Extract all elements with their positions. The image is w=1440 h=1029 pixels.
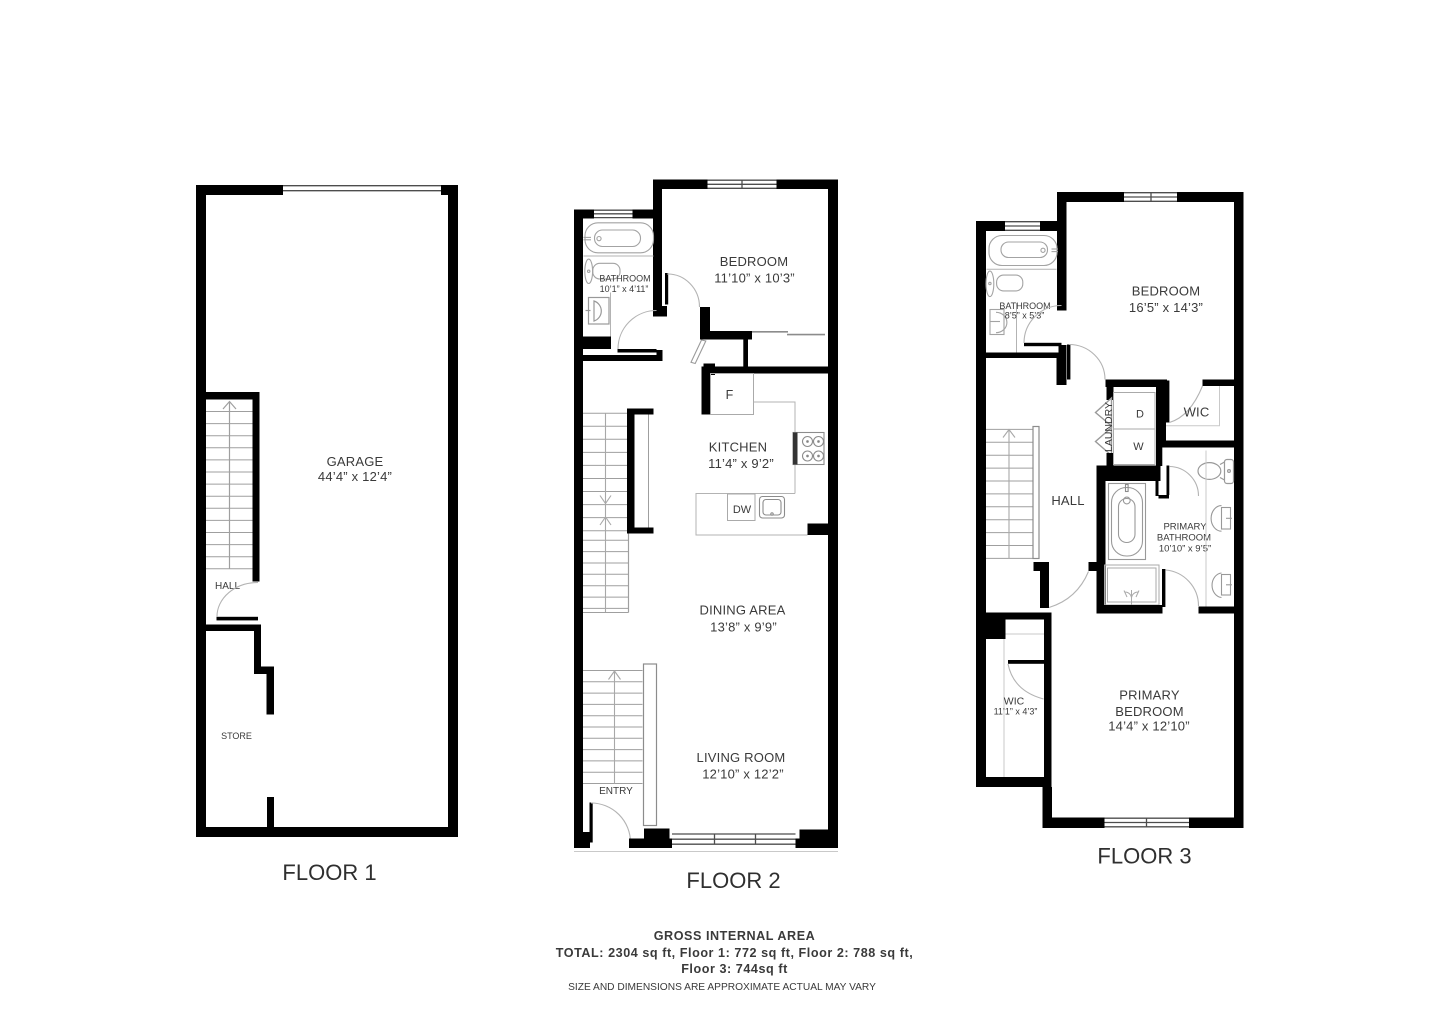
svg-text:FLOOR 2: FLOOR 2 (686, 868, 780, 893)
svg-text:D: D (1136, 409, 1144, 421)
svg-text:PRIMARY: PRIMARY (1163, 522, 1207, 533)
svg-text:11’10” x 10’3”: 11’10” x 10’3” (714, 271, 795, 286)
svg-text:STORE: STORE (221, 731, 252, 741)
svg-text:W: W (1133, 441, 1144, 453)
svg-text:HALL: HALL (1051, 493, 1084, 508)
svg-text:LAUNDRY: LAUNDRY (1103, 402, 1115, 452)
svg-text:SIZE AND DIMENSIONS ARE APPROX: SIZE AND DIMENSIONS ARE APPROXIMATE ACTU… (568, 982, 876, 993)
svg-text:GROSS INTERNAL AREA: GROSS INTERNAL AREA (654, 929, 816, 943)
svg-text:FLOOR 1: FLOOR 1 (282, 860, 376, 885)
svg-text:14’4” x 12’10”: 14’4” x 12’10” (1108, 719, 1190, 734)
svg-text:KITCHEN: KITCHEN (709, 440, 767, 455)
svg-text:BATHROOM: BATHROOM (1157, 533, 1211, 544)
svg-text:11’1” x 4’3”: 11’1” x 4’3” (994, 707, 1038, 717)
svg-text:BEDROOM: BEDROOM (720, 254, 789, 269)
svg-text:BEDROOM: BEDROOM (1115, 704, 1184, 719)
svg-text:F: F (726, 388, 734, 402)
svg-text:BEDROOM: BEDROOM (1132, 284, 1201, 299)
svg-text:HALL: HALL (215, 581, 240, 592)
svg-text:DW: DW (733, 504, 752, 516)
svg-text:DINING AREA: DINING AREA (700, 603, 786, 618)
svg-text:11’4” x 9’2”: 11’4” x 9’2” (708, 456, 774, 471)
svg-text:10’1” x 4’11”: 10’1” x 4’11” (600, 284, 649, 294)
svg-text:GARAGE: GARAGE (327, 454, 384, 469)
svg-text:ENTRY: ENTRY (599, 786, 633, 797)
svg-text:BATHROOM: BATHROOM (999, 301, 1050, 311)
svg-text:8’5” x 5’3”: 8’5” x 5’3” (1005, 311, 1045, 321)
svg-text:12’10” x 12’2”: 12’10” x 12’2” (702, 767, 784, 782)
svg-text:WIC: WIC (1184, 405, 1210, 420)
svg-text:13’8” x 9’9”: 13’8” x 9’9” (710, 620, 777, 635)
svg-text:TOTAL: 2304 sq ft, Floor 1: 77: TOTAL: 2304 sq ft, Floor 1: 772 sq ft, F… (556, 946, 914, 960)
svg-text:LIVING ROOM: LIVING ROOM (697, 750, 786, 765)
svg-text:10’10” x 9’5”: 10’10” x 9’5” (1159, 544, 1211, 555)
svg-text:44’4” x 12’4”: 44’4” x 12’4” (318, 469, 392, 484)
svg-text:PRIMARY: PRIMARY (1119, 688, 1180, 703)
svg-text:FLOOR 3: FLOOR 3 (1097, 844, 1191, 869)
svg-text:16’5” x 14’3”: 16’5” x 14’3” (1129, 300, 1203, 315)
svg-text:Floor 3: 744sq ft: Floor 3: 744sq ft (681, 962, 788, 976)
svg-text:BATHROOM: BATHROOM (599, 274, 650, 284)
